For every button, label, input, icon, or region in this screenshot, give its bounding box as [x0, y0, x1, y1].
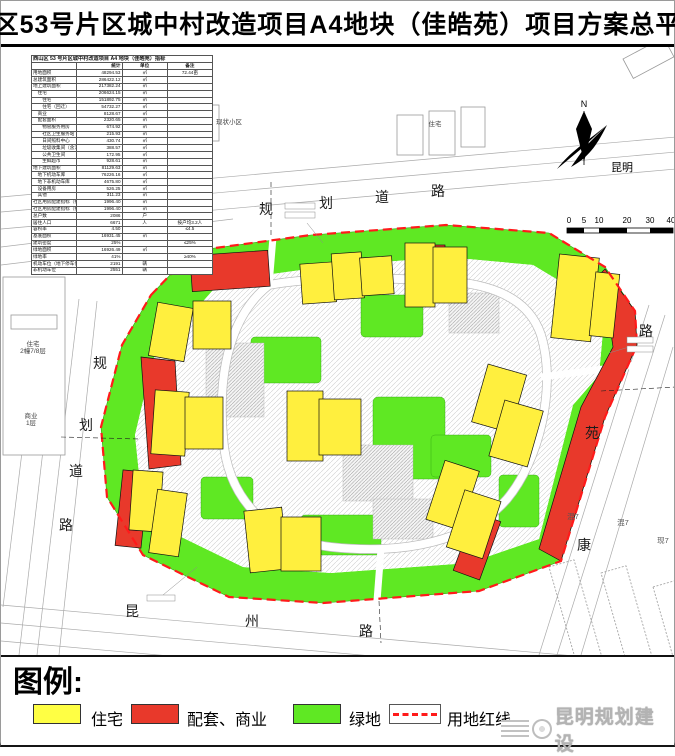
scale-tick: 40 [667, 216, 674, 225]
road-label-left: 路 [59, 515, 73, 535]
row-note [167, 97, 212, 104]
row-unit: ㎡ [122, 152, 167, 159]
row-label: 居住人口 [32, 220, 77, 227]
page-title: 西山区53号片区城中村改造项目A4地块（佳皓苑）项目方案总平面图 [0, 5, 675, 41]
road-label-right: 康 [577, 535, 591, 555]
row-unit: ㎡ [122, 199, 167, 206]
row-value: 206624.15 [77, 90, 122, 97]
row-value: 25% [77, 240, 122, 247]
row-value: 215.93 [77, 131, 122, 138]
row-value: 8128.67 [77, 111, 122, 118]
table-caption: 西山区 53 号片区城中村改造项目 A4 地块（佳皓苑）指标 [32, 56, 213, 63]
row-note [167, 206, 212, 213]
row-note: 72.44亩 [167, 70, 212, 77]
row-value: 76226.16 [77, 172, 122, 179]
row-note [167, 111, 212, 118]
row-unit: ㎡ [122, 165, 167, 172]
table-row: 垃圾收集间（含污水处理间） 388.57 ㎡ [32, 145, 213, 152]
row-value: 1996.40 [77, 199, 122, 206]
row-unit: ㎡ [122, 131, 167, 138]
row-value: 151892.75 [77, 97, 122, 104]
road-label-bottom: 昆 [125, 601, 139, 621]
table-row: 社区用房配建指标（按规划核定） 1996.40 ㎡ [32, 199, 213, 206]
row-unit: ㎡ [122, 138, 167, 145]
table-row: 容积率 4.50 ≤4.5 [32, 226, 213, 233]
row-value: 4675.80 [77, 179, 122, 186]
row-note [167, 247, 212, 254]
table-row: 其他 311.23 ㎡ [32, 192, 213, 199]
row-label: 总户数 [32, 213, 77, 220]
row-unit: 辆 [122, 267, 167, 274]
row-note [167, 172, 212, 179]
scale-bar: 0 5 10 20 30 40 [567, 216, 674, 233]
scale-tick: 5 [582, 216, 587, 225]
scale-tick: 30 [646, 216, 655, 225]
table-row: 公共卫生间 172.95 ㎡ [32, 152, 213, 159]
row-note [167, 179, 212, 186]
table-row: 基底面积 16931.45 ㎡ [32, 233, 213, 240]
table-header-row: 统计 单位 备注 [32, 63, 213, 70]
row-note [167, 261, 212, 268]
context-building-label: 混7 [611, 519, 635, 528]
row-note: ≤25% [167, 240, 212, 247]
table-body: 用地面积 48294.53 ㎡ 72.44亩 总建筑面积 286422.12 ㎡ [32, 70, 213, 274]
row-unit: ㎡ [122, 111, 167, 118]
row-unit: ㎡ [122, 145, 167, 152]
row-note [167, 131, 212, 138]
row-value: 388.57 [77, 145, 122, 152]
table-row: 地下建筑面积 81129.63 ㎡ [32, 165, 213, 172]
plan-sheet: 西山区53号片区城中村改造项目A4地块（佳皓苑）项目方案总平面图 [0, 0, 675, 747]
context-building-label: 住宅 2幢7/8层 [7, 341, 59, 356]
table-row: 日间照料中心 430.74 ㎡ [32, 138, 213, 145]
row-unit: ㎡ [122, 124, 167, 131]
road-label-top: 道 [375, 187, 389, 207]
row-note: ≤4.5 [167, 226, 212, 233]
row-unit: ㎡ [122, 90, 167, 97]
row-unit: ㎡ [122, 192, 167, 199]
row-label: 基底面积 [32, 233, 77, 240]
table-row: 生鲜超市 928.61 ㎡ [32, 158, 213, 165]
legend-label-green: 绿地 [349, 706, 381, 730]
row-label: 生鲜超市 [32, 158, 77, 165]
table-row: 社区卫生服务站 215.93 ㎡ [32, 131, 213, 138]
row-value: 2191 [77, 261, 122, 268]
row-label: 地下机动车库 [32, 172, 77, 179]
road-label-left: 道 [69, 461, 83, 481]
legend-heading: 图例: [13, 657, 83, 701]
table-row: 社区用房配建指标（按实际核算） 1996.40 ㎡ [32, 206, 213, 213]
row-unit [122, 226, 167, 233]
row-value: 4.50 [77, 226, 122, 233]
legend-swatch-green [293, 704, 341, 724]
drawing-area: N 昆明 0 5 10 20 30 40 [1, 47, 674, 655]
row-note [167, 192, 212, 199]
indicator-table: 西山区 53 号片区城中村改造项目 A4 地块（佳皓苑）指标 统计 单位 备注 … [31, 55, 213, 275]
table-row: 住宅 206624.15 ㎡ [32, 90, 213, 97]
legend-swatch-commercial [131, 704, 179, 724]
watermark-seal-icon [532, 719, 552, 739]
row-unit: ㎡ [122, 179, 167, 186]
col-unit: 单位 [122, 63, 167, 70]
road-label-top: 路 [431, 181, 445, 201]
legend: 图例: 住宅 配套、商业 绿地 用地红线 昆明规划建设 [1, 655, 674, 745]
row-note [167, 233, 212, 240]
row-label: 社区卫生服务站 [32, 131, 77, 138]
context-building-label: 混7 [561, 513, 585, 522]
row-unit: ㎡ [122, 158, 167, 165]
row-value: 81129.63 [77, 165, 122, 172]
legend-label-residential: 住宅 [91, 706, 123, 730]
table-row: 绿地率 41% ≥40% [32, 254, 213, 261]
row-note [167, 186, 212, 193]
scale-tick: 10 [595, 216, 604, 225]
row-note [167, 267, 212, 274]
row-unit: 辆 [122, 261, 167, 268]
row-value: 674.92 [77, 124, 122, 131]
legend-redline-sample [389, 704, 441, 724]
scale-tick: 20 [623, 216, 632, 225]
row-label: 物管服务用房 [32, 124, 77, 131]
north-letter: N [581, 99, 588, 109]
row-note [167, 138, 212, 145]
table-row: 用地面积 48294.53 ㎡ 72.44亩 [32, 70, 213, 77]
row-value: 6671 [77, 220, 122, 227]
context-building-label: 住宅 [415, 121, 455, 128]
row-value: 217382.24 [77, 83, 122, 90]
row-label: 总建筑面积 [32, 77, 77, 84]
row-unit: ㎡ [122, 186, 167, 193]
table-row: 建筑密度 25% ≤25% [32, 240, 213, 247]
row-value: 2086 [77, 213, 122, 220]
road-label-bottom: 路 [359, 621, 373, 641]
road-label-right: 苑 [585, 423, 599, 443]
table-row: 总户数 2086 户 [32, 213, 213, 220]
row-value: 526.25 [77, 186, 122, 193]
table-row: 住宅（回迁） 54732.27 ㎡ [32, 104, 213, 111]
watermark-lines-icon [501, 720, 529, 738]
row-unit: ㎡ [122, 83, 167, 90]
table-row: 机动车位（地下停车位） 2191 辆 [32, 261, 213, 268]
road-label-bottom: 州 [245, 611, 259, 631]
row-value: 172.95 [77, 152, 122, 159]
row-unit: 人 [122, 220, 167, 227]
row-label: 住宅 [32, 90, 77, 97]
row-label: 机动车位（地下停车位） [32, 261, 77, 268]
context-building-label: 商业 1层 [9, 413, 53, 428]
road-label-left: 规 [93, 353, 107, 373]
table-row: 商业 8128.67 ㎡ [32, 111, 213, 118]
city-label: 昆明 [611, 161, 633, 174]
row-label: 地下建筑面积 [32, 165, 77, 172]
context-neighborhood-label: 现状小区 [199, 119, 259, 126]
row-label: 建筑密度 [32, 240, 77, 247]
row-unit: ㎡ [122, 172, 167, 179]
legend-label-commercial: 配套、商业 [187, 706, 267, 730]
row-unit: ㎡ [122, 233, 167, 240]
row-value: 48294.53 [77, 70, 122, 77]
redline-dash-icon [393, 713, 437, 716]
table-row: 居住人口 6671 人 按户均3.2人 [32, 220, 213, 227]
row-note: 按户均3.2人 [167, 220, 212, 227]
row-label: 日间照料中心 [32, 138, 77, 145]
col-note: 备注 [167, 63, 212, 70]
row-note [167, 165, 212, 172]
context-building-label: 现7 [651, 537, 674, 546]
col-stat: 统计 [77, 63, 122, 70]
row-note [167, 213, 212, 220]
road-label-right: 路 [639, 321, 653, 341]
row-label: 住宅 [32, 97, 77, 104]
row-note [167, 199, 212, 206]
row-label: 社区用房配建指标（按实际核算） [32, 206, 77, 213]
row-value: 286422.12 [77, 77, 122, 84]
row-unit: ㎡ [122, 247, 167, 254]
row-unit: ㎡ [122, 104, 167, 111]
row-label: 绿地率 [32, 254, 77, 261]
row-unit [122, 254, 167, 261]
row-unit [122, 240, 167, 247]
row-value: 2551 [77, 267, 122, 274]
row-unit: ㎡ [122, 206, 167, 213]
row-note [167, 90, 212, 97]
row-unit: ㎡ [122, 117, 167, 124]
row-label: 住宅（回迁） [32, 104, 77, 111]
row-note [167, 77, 212, 84]
title-bar: 西山区53号片区城中村改造项目A4地块（佳皓苑）项目方案总平面图 [1, 1, 674, 47]
table-row: 地下机动车库 76226.16 ㎡ [32, 172, 213, 179]
row-label: 社区用房配建指标（按规划核定） [32, 199, 77, 206]
road-label-left: 划 [79, 415, 93, 435]
row-label: 公共卫生间 [32, 152, 77, 159]
context-label-line: 1层 [9, 420, 53, 427]
row-note [167, 152, 212, 159]
scale-tick: 0 [567, 216, 572, 225]
table-row: 非机动车位 2551 辆 [32, 267, 213, 274]
row-value: 2320.65 [77, 117, 122, 124]
row-unit: ㎡ [122, 77, 167, 84]
row-label: 配套面积 [32, 117, 77, 124]
row-label: 地上建筑面积 [32, 83, 77, 90]
table-row: 配套面积 2320.65 ㎡ [32, 117, 213, 124]
watermark-text: 昆明规划建设 [555, 702, 674, 756]
row-label: 地下非机动车库 [32, 179, 77, 186]
row-label: 其他 [32, 192, 77, 199]
row-value: 41% [77, 254, 122, 261]
row-note [167, 145, 212, 152]
road-label-top: 规 [259, 199, 273, 219]
row-note [167, 83, 212, 90]
row-note: ≥40% [167, 254, 212, 261]
row-value: 430.74 [77, 138, 122, 145]
row-label: 垃圾收集间（含污水处理间） [32, 145, 77, 152]
row-label: 容积率 [32, 226, 77, 233]
table-row: 地下非机动车库 4675.80 ㎡ [32, 179, 213, 186]
row-label: 设备用房 [32, 186, 77, 193]
context-label-line: 2幢7/8层 [7, 348, 59, 355]
table-row: 总建筑面积 286422.12 ㎡ [32, 77, 213, 84]
road-label-top: 划 [319, 193, 333, 213]
row-unit: ㎡ [122, 97, 167, 104]
row-note [167, 104, 212, 111]
table-row: 地上建筑面积 217382.24 ㎡ [32, 83, 213, 90]
agency-watermark: 昆明规划建设 [501, 702, 674, 756]
table-row: 住宅 151892.75 ㎡ [32, 97, 213, 104]
table-row: 物管服务用房 674.92 ㎡ [32, 124, 213, 131]
row-note [167, 158, 212, 165]
table-row: 设备用房 526.25 ㎡ [32, 186, 213, 193]
row-value: 16931.45 [77, 233, 122, 240]
row-value: 16926.49 [77, 247, 122, 254]
row-label: 商业 [32, 111, 77, 118]
row-value: 54732.27 [77, 104, 122, 111]
row-unit: 户 [122, 213, 167, 220]
row-value: 311.23 [77, 192, 122, 199]
row-label: 绿地面积 [32, 247, 77, 254]
row-unit: ㎡ [122, 70, 167, 77]
row-value: 928.61 [77, 158, 122, 165]
row-label: 非机动车位 [32, 267, 77, 274]
row-label: 用地面积 [32, 70, 77, 77]
table-row: 绿地面积 16926.49 ㎡ [32, 247, 213, 254]
row-value: 1996.40 [77, 206, 122, 213]
legend-swatch-residential [33, 704, 81, 724]
